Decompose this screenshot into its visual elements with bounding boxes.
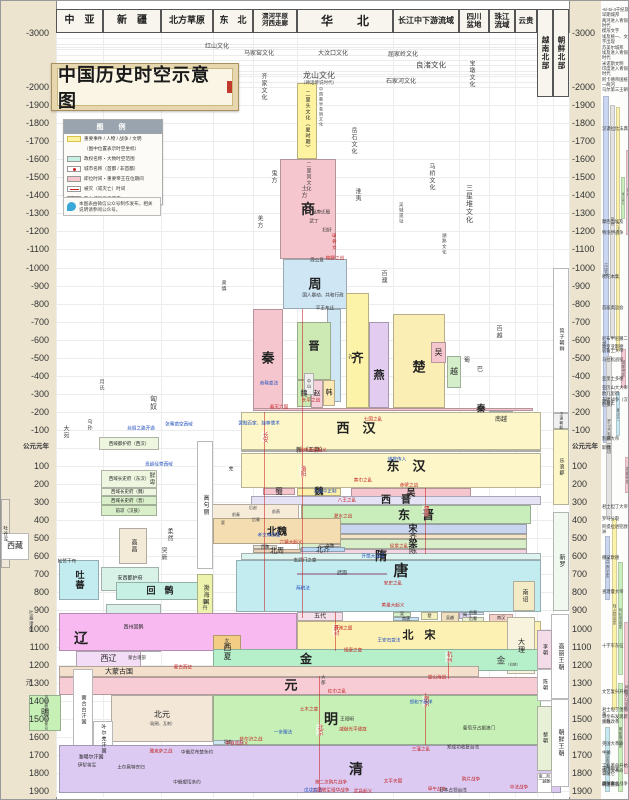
world-event-label: 居鲁士大帝 [602, 349, 629, 354]
event-label: 张骞凿空西域 [165, 423, 193, 428]
axis-tick-left: -1300 [26, 209, 49, 218]
polity-label: 阮朝（越南） [539, 774, 551, 792]
axis-tick-right: -500 [572, 354, 590, 363]
event-label: 鸦片战争 [462, 778, 480, 783]
culture-label: 石家河文化 [386, 79, 416, 85]
culture-label: 后赵 [249, 506, 257, 510]
grid-line [56, 55, 569, 56]
axis-tick-left: 100 [34, 462, 49, 471]
header-region-label: 越南北部 [541, 36, 549, 70]
culture-label: （鞑靼、瓦剌） [147, 722, 175, 726]
axis-tick-left: 200 [34, 480, 49, 489]
event-label: 甲骨文 [332, 234, 337, 251]
title-banner-inner: 中国历史时空示意图 [57, 68, 233, 106]
polity-label: 秦 [476, 405, 485, 414]
culture-label: 鲜卑 [148, 472, 154, 486]
polity-label: 楚 [428, 614, 432, 618]
world-strip: 阿拉伯帝国 [618, 562, 623, 675]
axis-tick-left: 公元元年 [23, 444, 49, 451]
world-event-label: 拿破仑 [602, 772, 629, 777]
event-label: 黄巾之乱 [354, 479, 372, 484]
legend-item: 政权名称・大致时空范围 [64, 154, 162, 164]
header-region: 东 北 [213, 9, 253, 33]
header-region: 珠江 流域 [489, 9, 515, 33]
polity-label: 秦 [261, 351, 274, 364]
culture-label: 金 [496, 657, 505, 666]
culture-label: 月氏 [99, 379, 104, 391]
polity-label: 西域长史府（魏） [111, 490, 147, 495]
header-region: 华 北 [297, 9, 393, 33]
legend-item: 城市名称（首都 / 非首都） [64, 164, 162, 174]
world-strip: 波斯帝国 [621, 349, 626, 389]
culture-label: 后秦 [252, 518, 260, 522]
polity-label: 楚 [412, 360, 425, 373]
culture-label: 二里冈文化 [306, 162, 311, 192]
event-label: 绿林赤眉起义 [299, 449, 327, 454]
polity-block [241, 553, 541, 560]
culture-label: 大汶口文化 [318, 51, 348, 57]
world-event-label: 汉谟拉比法典 [602, 127, 629, 132]
axis-tick-left: 1600 [29, 733, 49, 742]
event-label: 两税法 [296, 587, 310, 592]
world-event-label: 十字军东征 [602, 644, 629, 649]
world-event-label: 凯撒大帝 [602, 437, 629, 442]
culture-label: 吴城遗址 [399, 202, 404, 224]
world-early-notes: -6/-5/-4千纪及早期城邦两河进入青铜时代楔形文字埃及统一、文字出现苏美尔城… [602, 7, 629, 93]
axis-tick-left: -1000 [26, 264, 49, 273]
culture-label: （白族） [506, 663, 520, 667]
polity-block [59, 677, 561, 695]
axis-tick-left: -400 [31, 372, 49, 381]
polity-label: 西域都护府（西汉） [109, 441, 150, 446]
axis-tick-left: 1700 [29, 751, 49, 760]
polity-label: 韩 [326, 390, 333, 397]
axis-tick-right: 400 [572, 516, 587, 525]
axis-tick-left: -1800 [26, 119, 49, 128]
axis-tick-right: 1600 [572, 733, 592, 742]
world-event-label: 亚里士多德 [602, 377, 629, 382]
world-event-label: 阿育王 [602, 401, 629, 406]
polity-label: 高丽王朝 [557, 643, 563, 671]
axis-tick-right: -400 [572, 372, 590, 381]
axis-tick-left: -2000 [26, 83, 49, 92]
polity-label: 辽 [74, 631, 88, 645]
culture-label: 羌 [228, 467, 233, 472]
polity-label: 大蒙古国 [105, 668, 133, 675]
fall-swatch-icon [67, 186, 81, 192]
world-strip-label: 塞琉古 [616, 408, 620, 421]
axis-tick-right: -1100 [572, 245, 594, 254]
axis-tick-right: -1900 [572, 101, 595, 110]
header-region: 朝鲜北部 [553, 9, 569, 97]
world-event-label: 特洛伊战争 [602, 231, 629, 236]
axis-tick-left: -300 [31, 390, 49, 399]
axis-tick-right: 1700 [572, 751, 592, 760]
culture-label: 夏 [221, 521, 225, 525]
seal-icon [227, 81, 232, 93]
polity-label: 吴越 [446, 616, 454, 620]
polity-label: 五代 [314, 614, 326, 620]
polity-label: 陈朝 [542, 679, 547, 691]
axis-tick-left: -900 [31, 282, 49, 291]
title-banner: 中国历史时空示意图 [51, 63, 239, 111]
world-strip: 贵霜帝国 [625, 457, 629, 493]
event-label: 九品中正制 [314, 489, 337, 494]
capital-label: 长安 [261, 432, 267, 443]
event-label: 平王东迁 [316, 307, 334, 312]
world-event-label: 摩西出埃及 [602, 220, 629, 225]
culture-label: 乌孙 [87, 419, 92, 431]
polity-label: 吴 [435, 349, 443, 357]
axis-tick-right: -1600 [572, 155, 595, 164]
axis-tick-left: 1500 [29, 715, 49, 724]
polity-label: 西域长史府（东汉） [109, 477, 150, 482]
world-event-label: 欧几里得 [602, 392, 629, 397]
header-region: 渭河平原 河西走廊 [253, 9, 297, 33]
event-label: 日本占领台湾 [439, 789, 467, 794]
event-label: 王阳明 [340, 717, 354, 722]
axis-tick-left: 1300 [29, 679, 49, 688]
culture-label: 蒙古诸部 [128, 656, 146, 661]
event-swatch-icon [67, 136, 81, 142]
polity-label: 安西都护府 [117, 576, 142, 581]
axis-tick-left: 800 [34, 588, 49, 597]
world-strip-label: 米坦尼 [621, 192, 625, 205]
header-region: 越南北部 [537, 9, 553, 97]
event-label: 安史之乱 [384, 582, 402, 587]
axis-tick-left: 600 [34, 552, 49, 561]
polity-label: 二里头文化（夏时期） [305, 91, 310, 151]
legend-item-text: （图中位置表示时空坐标） [84, 146, 139, 151]
event-label: 戚继光平倭寇 [339, 727, 367, 732]
event-label: 李自成起义 [226, 742, 249, 747]
event-label: 松赞干布 [58, 560, 76, 565]
event-label: 七国之乱 [364, 418, 382, 423]
axis-tick-left: -3000 [26, 29, 49, 38]
capital-line [302, 309, 303, 618]
polity-label: 北周 [270, 547, 284, 554]
header-region: 云贵 [515, 9, 537, 33]
event-label: 土尔扈特东归 [117, 765, 145, 770]
polity-label: 燕 [374, 370, 385, 381]
event-label: 商鞅变法 [260, 381, 278, 386]
legend-item: （图中位置表示时空坐标） [64, 144, 162, 154]
polity-label: 中山 [307, 379, 311, 389]
event-label: 国人暴动、共和行政 [302, 294, 343, 299]
culture-label: 马桥文化 [428, 163, 434, 191]
polity-label: 前凉（汉族） [116, 508, 143, 513]
event-label: 中俄尼布楚条约 [181, 751, 213, 756]
world-strip: 米坦尼 [621, 177, 625, 219]
event-label: 土木之变 [300, 707, 318, 712]
polity-block [59, 613, 297, 651]
world-note-line: 印度进入青铜时代 [602, 66, 629, 77]
polity-label: 北 宋 [403, 630, 436, 641]
culture-label: 大都 [321, 674, 326, 685]
polity-label: 高昌 [130, 539, 136, 553]
culture-label: 前燕 [272, 510, 280, 514]
polity-label: 元 [284, 679, 297, 692]
event-label: 王安石变法 [378, 639, 401, 644]
world-note-line: 乌尔第三王朝 [602, 87, 629, 92]
culture-label: 羌方 [256, 215, 262, 229]
city-swatch-icon [67, 166, 81, 172]
polity-label: 李朝 [542, 644, 547, 656]
polity-label: 箕子朝鲜 [559, 328, 564, 352]
polity-label: 南汉 [497, 616, 505, 620]
event-label: 孔子 [348, 355, 357, 360]
world-event-label: 阿提拉进犯欧洲 [602, 525, 629, 534]
polity-label: 察合台汗国 [81, 695, 86, 725]
axis-tick-right: 600 [572, 552, 587, 561]
axis-tick-left: 1900 [29, 787, 49, 796]
polity-label: 回 鹘 [146, 586, 173, 595]
axis-tick-left: -800 [31, 300, 49, 309]
culture-label: 百越 [495, 325, 501, 339]
culture-label: 三星堆文化 [466, 184, 473, 224]
world-event-label: 穆罕默德 [602, 556, 629, 561]
grid-line [56, 44, 569, 45]
legend-item-text: 被灭（或灭亡）时间 [84, 186, 125, 191]
header-region: 中 亚 [56, 9, 103, 33]
event-label: 周公旦 [310, 259, 324, 264]
axis-tick-right: -800 [572, 300, 590, 309]
event-label: 中俄瑷珲条约 [173, 781, 201, 786]
axis-tick-left: -1400 [26, 191, 49, 200]
event-label: 黄巢大起义 [382, 604, 405, 609]
axis-tick-right: -200 [572, 408, 590, 417]
header-region: 新 疆 [103, 9, 161, 33]
polity-label: 叶尔羌汗国 [101, 724, 106, 754]
culture-label: 屈家岭文化 [388, 52, 418, 58]
axis-tick-left: -1600 [26, 155, 49, 164]
polity-label: 唐 [393, 563, 408, 578]
event-label: 伊犁将军 [78, 764, 96, 769]
culture-label: 湖熟文化 [442, 233, 447, 255]
event-label: 郑和下西洋 [410, 701, 433, 706]
world-note-line: 埃及统一、文字出现 [602, 34, 629, 45]
axis-tick-right: -1400 [572, 191, 595, 200]
polity-label: 后蜀 [469, 617, 477, 621]
axis-tick-left: -500 [31, 354, 49, 363]
axis-tick-left: 1100 [30, 643, 49, 652]
axis-tick-right: 1500 [572, 715, 592, 724]
polity-label: 高句丽 [202, 494, 208, 515]
event-label: 佛教传入 [388, 458, 406, 463]
event-label: 八国联军侵华战争 [313, 789, 350, 794]
event-label: 靖康之变 [344, 649, 362, 654]
axis-tick-left: -1100 [27, 245, 49, 254]
event-label: 八王之乱 [338, 499, 356, 504]
polity-label: 北齐 [316, 546, 330, 553]
event-label: 罢黜百家、独尊儒术 [238, 422, 279, 427]
header-region: 长江中下游流域 [393, 9, 459, 33]
polity-label: 吐蕃 [75, 570, 84, 590]
polity-label: 南诏 [521, 589, 527, 603]
event-label: 侯景之乱 [390, 545, 408, 550]
culture-label: 巴 [477, 367, 483, 373]
polity-label: 卫满朝鲜 [559, 412, 563, 430]
header-region: 北方草原 [161, 9, 213, 33]
axis-tick-left: -200 [31, 408, 49, 417]
world-note-line: 埃及进入青铜时代 [602, 50, 629, 61]
legend-item-text: 重要事件 / 人物 / 战争 / 文明 [84, 136, 141, 141]
axis-tick-left: -1200 [26, 227, 49, 236]
axis-tick-right: 900 [572, 606, 587, 615]
event2-swatch-icon [67, 146, 81, 152]
event-label: 三藩之乱 [412, 748, 430, 753]
world-event-label: 明治维新 [602, 783, 629, 788]
culture-label: 前秦 [232, 513, 240, 517]
polity-label: 西魏 [261, 545, 269, 549]
grid-line [56, 33, 57, 797]
polity-label: 武周 [337, 571, 347, 576]
axis-tick-right: -600 [572, 336, 590, 345]
culture-label: 肃慎 [221, 280, 226, 292]
axis-tick-right: -1300 [572, 209, 595, 218]
event-label: 雅克萨之战 [150, 750, 173, 755]
culture-label: 淮夷 [354, 188, 360, 202]
culture-label: 齐家文化 [260, 73, 266, 101]
polity-label: 朝鲜王朝 [557, 729, 563, 757]
header-region-label: 朝鲜北部 [557, 36, 565, 70]
axis-tick-right: 500 [572, 534, 587, 543]
axis-tick-right: -700 [572, 318, 590, 327]
logo-icon [67, 202, 76, 211]
event-label: 孝文帝改革 [258, 534, 281, 539]
event-label: 丝绸之路开通 [127, 427, 155, 432]
polity-label: 魏 [301, 390, 308, 397]
event-label: 第二次鸦片战争 [315, 781, 347, 786]
axis-tick-right: -100 [572, 426, 590, 435]
world-event-label: 君士坦丁大帝 [602, 505, 629, 510]
axis-tick-right: 700 [572, 570, 587, 579]
world-note-line: 两河进入青铜时代 [602, 18, 629, 29]
axis-tick-right: 200 [572, 480, 587, 489]
axis-tick-right: -1800 [572, 119, 595, 128]
axis-tick-right: 1300 [572, 679, 592, 688]
polity-label: 黎朝 [542, 732, 547, 744]
axis-tick-right: 1000 [572, 625, 592, 634]
event-label: 葡萄牙占据澳门 [463, 727, 495, 732]
event-label: 开凿大运河 [362, 555, 385, 560]
axis-tick-right: -1700 [572, 137, 595, 146]
axis-tick-right: -900 [572, 282, 590, 291]
culture-label: 中国最早青铜文化 [319, 87, 323, 127]
axis-tick-left: -1700 [26, 137, 49, 146]
event-label: 牧野之战 [326, 257, 344, 262]
world-event-label: 文艺复兴开始 [602, 690, 629, 695]
event-label: 中法战争 [510, 786, 528, 791]
grid-line [56, 49, 569, 50]
world-strip-label: 拜占庭帝国 [612, 604, 616, 625]
polity-label: 北元 [154, 711, 170, 719]
polity-label: 西辽 [101, 655, 117, 663]
event-label: 秦灭六国 [270, 406, 288, 411]
legend-box: 图 例 重要事件 / 人物 / 战争 / 文明（图中位置表示时空坐标）政权名称・… [63, 119, 163, 205]
event-label: 一条鞭法 [274, 731, 292, 736]
polity-label: 大理 [518, 638, 525, 654]
culture-label: 鬼方 [270, 170, 276, 184]
legend-item: 即位时间・重要帝王在位期间 [64, 174, 162, 184]
polity-label: 西藏 [7, 542, 23, 550]
polity-label: 晋 [309, 341, 320, 352]
world-event-label: 英国大革命 [602, 742, 629, 747]
band-swatch-icon [67, 156, 81, 162]
world-event-label: 吠陀本集 [602, 275, 629, 280]
polity-label: 南唐 [402, 617, 410, 621]
event-label: 武昌起义 [354, 790, 372, 795]
culture-label: 良渚文化 [416, 62, 446, 70]
axis-tick-right: -2000 [572, 83, 595, 92]
event-label: 妇好 [322, 228, 331, 233]
culture-label: 大宛 [62, 425, 68, 439]
capital-label: 北京 [316, 724, 322, 735]
axis-tick-left: -1900 [26, 101, 49, 110]
axis-tick-right: 1800 [572, 769, 592, 778]
legend-item-text: 城市名称（首都 / 非首都） [84, 166, 138, 171]
world-event-label: 罗马分裂 [602, 517, 629, 522]
culture-label: 蜀 [464, 358, 470, 364]
axis-tick-left: -1500 [26, 173, 49, 182]
axis-tick-right: -3000 [572, 29, 595, 38]
axis-tick-right: 1900 [572, 787, 592, 796]
axis-tick-right: 1400 [572, 697, 592, 706]
world-event-label: 马拉松战役 [602, 358, 629, 363]
culture-label: 百濮 [380, 270, 386, 284]
event-label: 六镇大起义 [280, 540, 303, 545]
polity-label: 周 [308, 278, 321, 291]
polity-label: 乐浪郡 [559, 458, 564, 476]
culture-label: （神话传说时代） [301, 80, 337, 85]
legend-item: 重要事件 / 人物 / 战争 / 文明 [64, 134, 162, 144]
axis-tick-left: 900 [34, 606, 49, 615]
legend-item-text: 政权名称・大致时空范围 [84, 156, 135, 161]
polity-label: 闽 [463, 613, 467, 617]
world-event-label: 牛顿 [602, 751, 629, 756]
polity-label: 清 [349, 762, 363, 776]
event-label: 武丁 [309, 220, 318, 225]
culture-label: 马家窑文化 [244, 51, 274, 57]
world-strip-label: 贵霜帝国 [625, 467, 629, 484]
event-label: 淝水之战 [334, 515, 352, 520]
polity-label: 西 汉 [336, 422, 375, 435]
axis-tick-right: 公元元年 [572, 444, 598, 451]
polity-label: 明 [324, 712, 338, 726]
event-label: 崖山海战 [428, 676, 446, 681]
world-note-line: 阿卡德帝国统一两河 [602, 77, 629, 88]
polity-label: 金 [300, 653, 312, 665]
culture-label: 突厥 [160, 547, 166, 561]
culture-label: 匈奴 [150, 395, 157, 411]
reign-swatch-icon [67, 176, 81, 182]
grid-line [56, 47, 569, 48]
axis-tick-right: -300 [572, 390, 590, 399]
event-label: 赤壁之战 [400, 483, 418, 488]
polity-label: 吐谷浑 [3, 525, 8, 542]
polity-label: 蜀 [275, 488, 283, 496]
axis-tick-left: 500 [34, 534, 49, 543]
event-label: 太平天国 [384, 780, 402, 785]
polity-label: 新罗 [558, 554, 564, 568]
capital-label: 杭州 [445, 652, 451, 663]
page-title: 中国历史时空示意图 [58, 61, 224, 113]
axis-tick-left: -700 [31, 318, 49, 327]
world-strip-label: 阿拉伯帝国 [618, 608, 622, 629]
legend-title: 图 例 [64, 120, 162, 134]
culture-label: 土方 [300, 185, 306, 199]
history-poster: 古埃及亚述巴比伦米坦尼赫梯波斯帝国塞琉古罗马共和国（帝国）贵霜帝国拜占庭帝国法兰… [0, 0, 629, 800]
